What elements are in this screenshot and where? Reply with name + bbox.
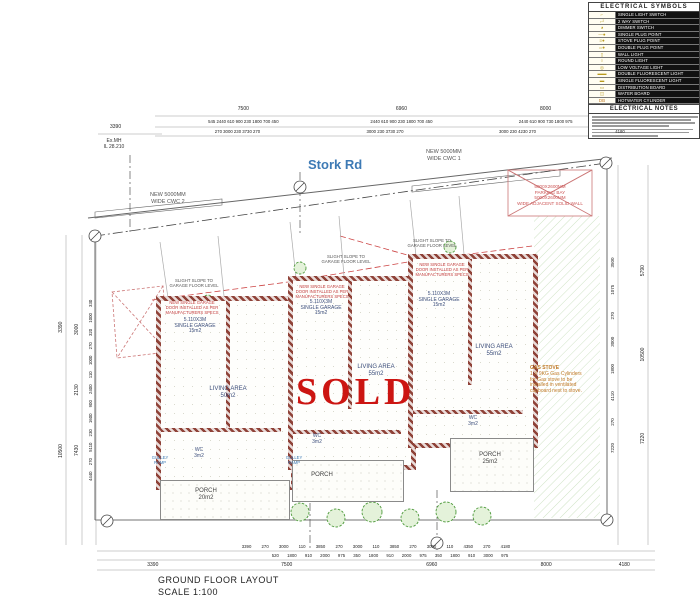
legend-title: ELECTRICAL SYMBOLS <box>589 3 699 12</box>
drawing-scale: SCALE 1:100 <box>158 586 279 598</box>
legend-row: ▬▬DOUBLE FLUORESCENT LIGHT <box>589 71 699 78</box>
drawing-title: GROUND FLOOR LAYOUT <box>158 574 279 586</box>
legend-row: ▭DISTRIBUTION BOARD <box>589 85 699 92</box>
stove-plug-icon: ≡● <box>589 38 616 44</box>
unit-1-partition <box>161 428 281 432</box>
legend-row: ≡●STOVE PLUG POINT <box>589 38 699 45</box>
gas-stove-note: GAS STOVE 1 X 9KG Gas Cylinders for Gas … <box>530 366 588 395</box>
unit-3-living-label: LIVING AREA 55m2 <box>466 344 522 358</box>
dim-top-left: 3390 <box>110 124 121 131</box>
unit-3-garage-partition <box>468 259 472 385</box>
unit-1-porch-label: PORCH 20m2 <box>184 488 228 502</box>
single-light-switch-icon: ⌐ <box>589 12 616 18</box>
unit-1-garage-label: 5.110X3M SINGLE GARAGE 15m2 <box>166 318 224 335</box>
unit-1-wc-label: WC 3m2 <box>188 448 210 459</box>
legend-row: DBHOTWATER CYLINDER <box>589 98 699 105</box>
dim-bottom-overall: 3390 7500 6960 8000 4180 <box>97 562 655 569</box>
garage-door-note-3: NEW SINGLE GARAGE DOOR INSTALLED AS PER … <box>410 262 474 277</box>
dim-left-inner: 4440 270 5110 230 1600 900 2400 110 1000… <box>88 235 93 545</box>
legend-row: ◫WATER BOARD <box>589 91 699 98</box>
legend-row: ═●DOUBLE PLUG POINT <box>589 45 699 52</box>
water-board-icon: ◫ <box>589 91 616 97</box>
legend-row: ○ROUND LIGHT <box>589 58 699 65</box>
drawing-title-block: GROUND FLOOR LAYOUT SCALE 1:100 <box>158 574 279 598</box>
single-fluorescent-icon: ▬ <box>589 78 616 84</box>
unit-2-porch-label: PORCH <box>300 472 344 479</box>
slope-note-3: SLIGHT SLOPE TO GARAGE FLOOR LEVEL <box>402 238 462 248</box>
parking-bay-note: 5000X2600MM PARKING BAY 5000X2600MM WIDE… <box>508 184 592 206</box>
unit-3-partition <box>413 410 523 414</box>
distribution-board-icon: ▭ <box>589 85 616 91</box>
unit-2-garage-label: 5.110X3M SINGLE GARAGE 15m2 <box>296 300 346 317</box>
hotwater-cylinder-icon: DB <box>589 98 616 104</box>
legend-row: ◕DIMMER SWITCH <box>589 25 699 32</box>
gulley-ramp-label-1: GULLEY RAMP <box>146 456 174 466</box>
garage-door-note-1: NEW SINGLE GARAGE DOOR INSTALLED AS PER … <box>160 300 224 315</box>
gulley-ramp-label-2: GULLEY RAMP <box>280 456 308 466</box>
unit-1-living-label: LIVING AREA 50m2 <box>200 386 256 400</box>
dim-right-inner: 7220 270 4110 1800 3000 270 1075 3500 <box>610 165 615 545</box>
legend-row: ▯WALL LIGHT <box>589 52 699 59</box>
slope-note-1: SLIGHT SLOPE TO GARAGE FLOOR LEVEL <box>164 278 224 288</box>
dim-top-sub1: 545 2440 610 900 230 1800 700 450 2440 6… <box>155 118 620 125</box>
unit-2-wc-label: WC 3m2 <box>306 434 328 445</box>
single-plug-icon: —● <box>589 32 616 38</box>
unit-1-garage-partition <box>226 301 230 431</box>
road-name-label: Stork Rd <box>308 157 362 172</box>
unit-3-garage-label: 5.110X3M SINGLE GARAGE 15m2 <box>412 292 466 309</box>
legend-row: ⌐SINGLE LIGHT SWITCH <box>589 12 699 19</box>
cwc1-label: NEW 5000MM WIDE CWC 1 <box>426 149 462 162</box>
garage-door-note-2: NEW SINGLE GARAGE DOOR INSTALLED AS PER … <box>290 284 354 299</box>
legend-row: ▬SINGLE FLUORESCENT LIGHT <box>589 78 699 85</box>
unit-2-porch <box>292 460 404 502</box>
dim-left-mid: 7430 2130 3000 <box>74 235 80 545</box>
floor-plan-sheet: ELECTRICAL SYMBOLS ⌐SINGLE LIGHT SWITCH … <box>0 0 700 612</box>
dim-top-sub2: 270 3000 230 3730 270 3000 230 3730 270 … <box>155 128 655 135</box>
dim-left-outer: 10500 3390 <box>58 235 64 545</box>
legend-row: ◎LOW VOLTAGE LIGHT <box>589 65 699 72</box>
legend-row: —●SINGLE PLUG POINT <box>589 32 699 39</box>
wall-light-icon: ▯ <box>589 52 616 58</box>
dim-bottom-sub2: 520 1800 910 2000 975 350 1800 910 2000 … <box>130 552 650 559</box>
cwc2-label: NEW 5000MM WIDE CWC 2 <box>150 192 186 205</box>
slope-note-2: SLIGHT SLOPE TO GARAGE FLOOR LEVEL <box>316 254 376 264</box>
dim-bottom-sub1: 3390 270 3000 110 3850 270 3000 110 3850… <box>97 543 655 550</box>
round-light-icon: ○ <box>589 58 616 64</box>
dim-right-outer: 7220 10500 5790 <box>640 165 646 545</box>
sold-stamp: SOLD <box>296 370 415 414</box>
low-voltage-light-icon: ◎ <box>589 65 616 71</box>
dim-top-overall: 7500 6960 8000 <box>155 106 620 113</box>
two-way-switch-icon: ⌐² <box>589 19 616 25</box>
unit-3-wc-label: WC 3m2 <box>462 416 484 427</box>
double-plug-icon: ═● <box>589 45 616 51</box>
dimmer-switch-icon: ◕ <box>589 25 616 31</box>
double-fluorescent-icon: ▬▬ <box>589 71 616 77</box>
legend-row: ⌐²2 WAY SWITCH <box>589 19 699 26</box>
unit-3-porch-label: PORCH 25m2 <box>468 452 512 466</box>
manhole-label: Ex.MH IL 28.210 <box>92 138 136 150</box>
